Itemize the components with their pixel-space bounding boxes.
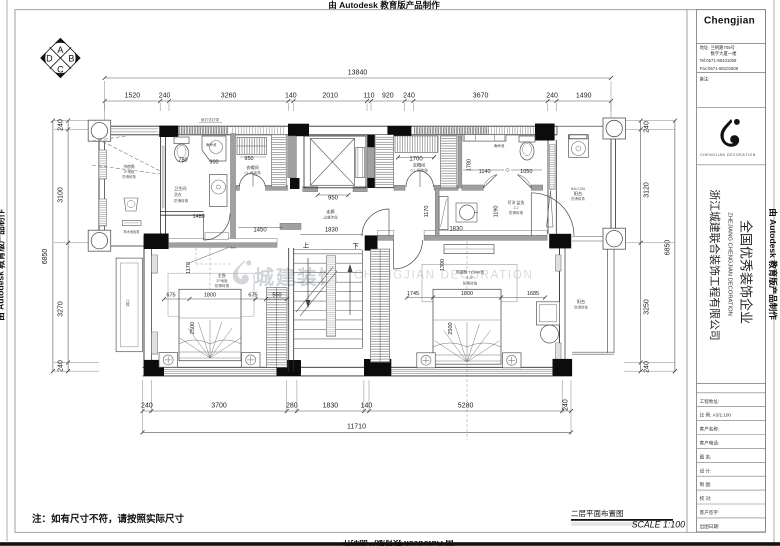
- svg-text:2F地板: 2F地板: [216, 278, 228, 283]
- svg-text:1830: 1830: [325, 228, 339, 234]
- svg-text:Tel:0571-88101008: Tel:0571-88101008: [700, 58, 737, 63]
- svg-text:2.2: 2.2: [513, 206, 518, 210]
- svg-text:客户名称:: 客户名称:: [700, 426, 720, 433]
- svg-text:1190: 1190: [494, 206, 500, 218]
- svg-text:洞口: 洞口: [125, 299, 130, 307]
- svg-text:6850: 6850: [42, 249, 49, 265]
- svg-text:2.2F: 2.2F: [466, 276, 474, 280]
- svg-text:675: 675: [166, 293, 175, 299]
- svg-text:防滑砖角: 防滑砖角: [122, 174, 136, 179]
- svg-text:数字大厦一楼: 数字大厦一楼: [711, 50, 737, 57]
- svg-text:675: 675: [248, 293, 257, 299]
- svg-text:240: 240: [563, 399, 570, 411]
- svg-text:注：如有尺寸不符，请按照实际尺寸: 注：如有尺寸不符，请按照实际尺寸: [32, 513, 185, 525]
- svg-text:3260: 3260: [221, 93, 237, 100]
- svg-text:3670: 3670: [473, 93, 489, 100]
- svg-text:1390: 1390: [440, 259, 446, 271]
- svg-text:1800: 1800: [204, 293, 216, 299]
- svg-text:2F地板: 2F地板: [124, 169, 135, 174]
- svg-text:1170: 1170: [424, 206, 430, 218]
- svg-text:3250: 3250: [644, 299, 651, 315]
- svg-text:900: 900: [209, 160, 218, 166]
- svg-text:阳台: 阳台: [577, 298, 585, 305]
- svg-text:1800: 1800: [461, 291, 473, 297]
- svg-text:240: 240: [159, 93, 171, 100]
- svg-text:由 Autodesk 教育版产品制作: 由 Autodesk 教育版产品制作: [342, 539, 454, 546]
- svg-text:CHENGJIAN DECORATION: CHENGJIAN DECORATION: [700, 153, 756, 157]
- svg-text:11710: 11710: [347, 424, 366, 431]
- svg-text:防滑砖角: 防滑砖角: [509, 210, 524, 215]
- svg-text:出图日期:: 出图日期:: [700, 523, 720, 530]
- svg-text:280: 280: [286, 403, 298, 410]
- svg-text:Fax:0571-88102608: Fax:0571-88102608: [700, 66, 739, 71]
- svg-text:13840: 13840: [348, 70, 368, 77]
- svg-text:主卧: 主卧: [218, 272, 226, 279]
- svg-text:浙江城建联合装饰工程有限公司: 浙江城建联合装饰工程有限公司: [708, 189, 722, 340]
- svg-text:1685: 1685: [527, 291, 539, 297]
- svg-text:920: 920: [382, 93, 394, 100]
- svg-text:240: 240: [644, 361, 651, 373]
- svg-text:3700: 3700: [211, 403, 227, 410]
- svg-text:Chengjian: Chengjian: [704, 16, 755, 27]
- svg-text:比 例:: 比 例:: [700, 412, 712, 419]
- svg-text:1830: 1830: [323, 403, 339, 410]
- svg-text:防滑砖角: 防滑砖角: [571, 196, 585, 201]
- svg-text:衣帽间: 衣帽间: [246, 164, 259, 171]
- svg-text:设 计:: 设 计:: [700, 467, 712, 474]
- svg-text:由 Autodesk 教育版产品制作: 由 Autodesk 教育版产品制作: [0, 209, 6, 321]
- svg-text:A: A: [57, 45, 63, 55]
- svg-text:3100: 3100: [58, 187, 65, 203]
- svg-text:1170: 1170: [186, 262, 192, 274]
- svg-text:备注:: 备注:: [700, 76, 710, 83]
- svg-text:1480: 1480: [192, 214, 204, 220]
- svg-text:盯沐 盆洗: 盯沐 盆洗: [508, 200, 524, 205]
- svg-text:1745: 1745: [407, 291, 419, 297]
- svg-text:3120: 3120: [644, 182, 651, 198]
- svg-text:地址: 兰柄路705号: 地址: 兰柄路705号: [700, 44, 735, 51]
- svg-text:B: B: [68, 54, 74, 64]
- svg-text:全国优秀装饰企业: 全国优秀装饰企业: [739, 220, 754, 324]
- svg-text:2010: 2010: [322, 93, 338, 100]
- svg-text:240: 240: [644, 121, 651, 133]
- svg-text:1490: 1490: [576, 93, 592, 100]
- svg-text:下: 下: [352, 242, 359, 250]
- svg-text:防滑砖角: 防滑砖角: [574, 305, 588, 310]
- svg-text:上: 上: [303, 240, 310, 249]
- svg-text:书房角: 书房角: [123, 164, 135, 169]
- svg-text:防滑砖角: 防滑砖角: [174, 198, 189, 203]
- svg-text:110: 110: [363, 93, 374, 100]
- svg-text:140: 140: [361, 403, 373, 410]
- svg-text:海峠池: 海峠池: [206, 142, 217, 147]
- svg-text:防滑砖角: 防滑砖角: [215, 283, 230, 288]
- svg-text:2500: 2500: [190, 322, 196, 334]
- svg-text:海峠池: 海峠池: [494, 143, 505, 148]
- svg-text:240: 240: [546, 93, 558, 100]
- svg-text:图 名:: 图 名:: [700, 453, 712, 460]
- svg-text:电视柜 TCB4#台: 电视柜 TCB4#台: [456, 270, 484, 275]
- svg-text:550: 550: [272, 293, 281, 299]
- svg-text:客户电话:: 客户电话:: [700, 440, 720, 447]
- svg-text:二层平面布置图: 二层平面布置图: [571, 508, 624, 518]
- svg-text:橡木地板角: 橡木地板角: [124, 229, 140, 234]
- svg-text:C: C: [57, 65, 64, 75]
- svg-text:卫生间: 卫生间: [174, 185, 187, 192]
- svg-text:140: 140: [285, 93, 297, 100]
- svg-text:ZHEJIANG CHENGJIAN DECORATION: ZHEJIANG CHENGJIAN DECORATION: [727, 212, 733, 316]
- svg-text:校 对:: 校 对:: [700, 495, 712, 502]
- svg-text:制 图:: 制 图:: [700, 481, 712, 488]
- svg-text:工程地址:: 工程地址:: [700, 398, 720, 405]
- svg-text:衣帽间: 衣帽间: [413, 162, 426, 169]
- svg-text:防滑砖角: 防滑砖角: [463, 281, 478, 286]
- svg-text:由 Autodesk 教育版产品制作: 由 Autodesk 教育版产品制作: [328, 0, 440, 10]
- svg-text:240: 240: [58, 119, 65, 131]
- svg-text:1780: 1780: [467, 159, 473, 171]
- svg-text:SCALE 1:100: SCALE 1:100: [632, 520, 685, 530]
- svg-text:过道砖角: 过道砖角: [323, 215, 338, 220]
- svg-text:1830: 1830: [449, 227, 463, 233]
- svg-text:由 Autodesk 教育版产品制作: 由 Autodesk 教育版产品制作: [768, 208, 778, 320]
- svg-text:1520: 1520: [125, 93, 141, 100]
- svg-text:阳台: 阳台: [574, 190, 582, 197]
- svg-text:240: 240: [403, 93, 415, 100]
- svg-text:5280: 5280: [458, 403, 474, 410]
- svg-text:6850: 6850: [665, 240, 672, 256]
- svg-text:射灯式灯带: 射灯式灯带: [201, 117, 219, 122]
- svg-text:240: 240: [58, 360, 65, 372]
- svg-text:客户签字:: 客户签字:: [700, 509, 720, 516]
- svg-text:780: 780: [178, 158, 187, 164]
- svg-text:2500: 2500: [448, 322, 454, 334]
- svg-text:1450: 1450: [253, 228, 267, 234]
- svg-text:走廊: 走廊: [326, 208, 334, 215]
- svg-text:A3/1:100: A3/1:100: [713, 413, 732, 418]
- svg-text:240: 240: [141, 403, 153, 410]
- svg-text:洗衣: 洗衣: [174, 192, 182, 197]
- svg-text:3270: 3270: [58, 301, 65, 317]
- svg-text:D: D: [46, 54, 53, 64]
- svg-text:950: 950: [328, 196, 339, 202]
